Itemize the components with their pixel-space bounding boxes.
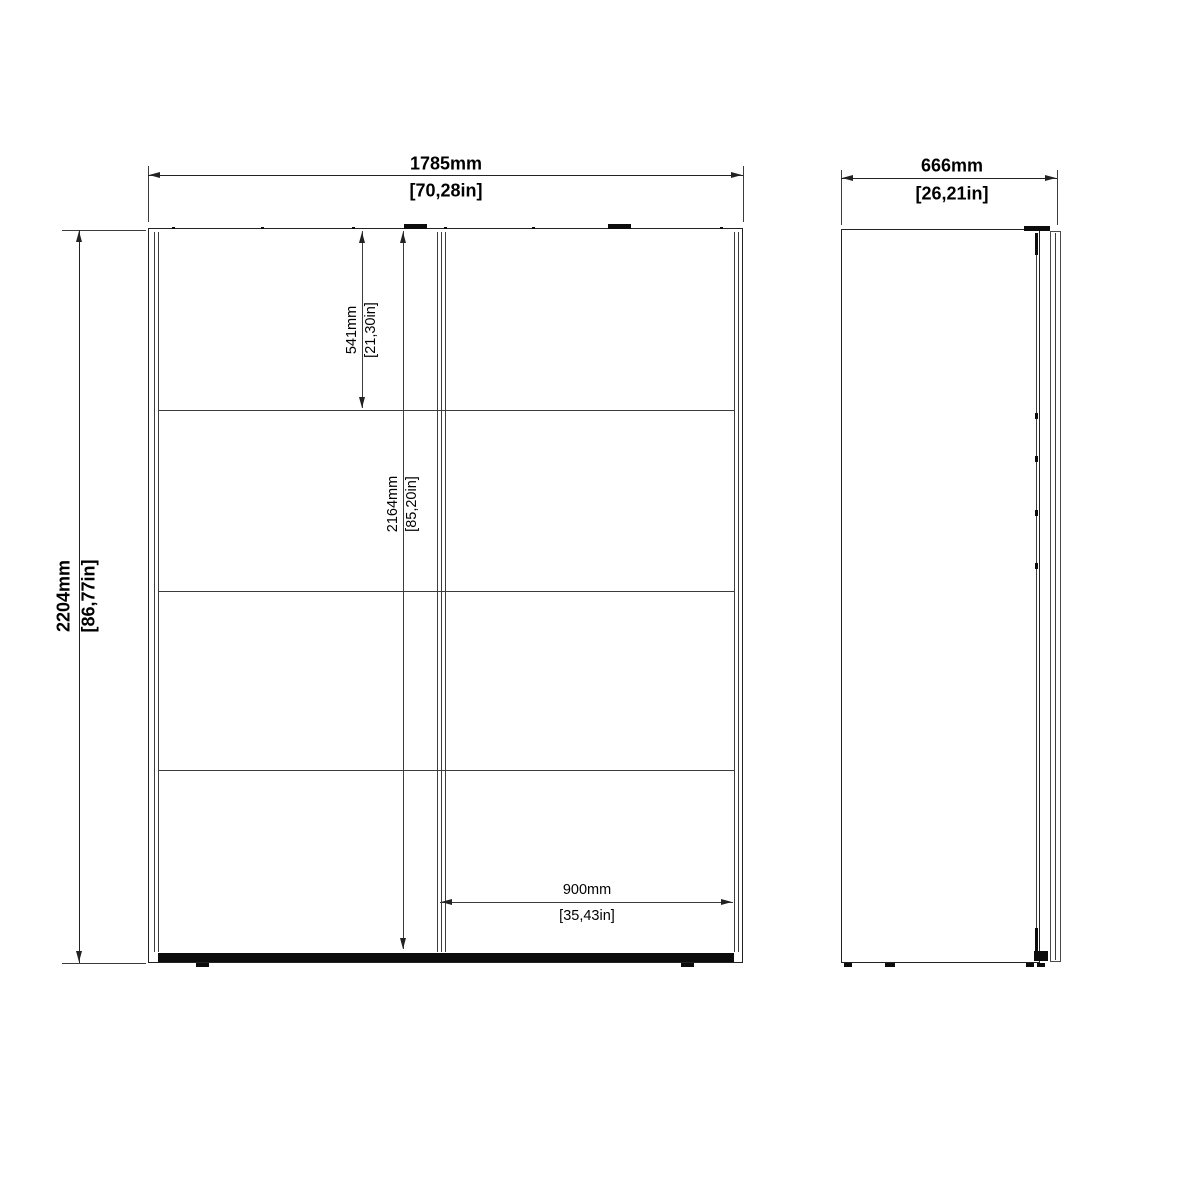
left-door-edge [158,232,159,952]
shelf-line [158,591,734,592]
door-connector-mark [1035,413,1038,419]
sliding-door-inner-line [1055,233,1056,960]
dim-line-overall-width [148,175,743,176]
door-connector-mark [1035,456,1038,462]
wardrobe-dimension-drawing: 1785mm [70,28in] 2204mm [86,77in] 541mm … [0,0,1200,1200]
dim-arrow [76,231,82,242]
top-screw-mark [720,227,723,229]
door-width-in-label: [35,43in] [559,908,615,924]
dim-line-door-width [440,902,733,903]
top-section-mm-label: 541mm [344,306,360,354]
side-depth-mm-label: 666mm [921,156,983,177]
top-screw-mark [532,227,535,229]
door-bottom-roller [1034,951,1048,961]
dim-line-depth [841,178,1057,179]
door-divider [437,232,438,952]
dim-arrow [441,899,452,905]
foot-glide [885,963,895,967]
front-height-mm-label: 2204mm [54,560,75,632]
ext-line-front-right [743,166,744,222]
foot-glide [1037,963,1045,967]
ext-line-height-bottom [62,963,146,964]
dim-arrow [400,938,406,949]
foot-glide [844,963,852,967]
door-connector-mark [1035,510,1038,516]
dim-arrow [842,175,853,181]
dim-arrow [149,172,160,178]
door-connector-mark [1035,233,1038,255]
interior-height-mm-label: 2164mm [385,476,401,532]
bottom-rail [158,953,734,962]
foot-glide [681,963,694,967]
interior-height-in-label: [85,20in] [404,476,420,532]
left-door-edge [154,232,155,952]
dim-arrow [1045,175,1056,181]
side-depth-in-label: [26,21in] [915,184,988,205]
top-section-in-label: [21,30in] [363,302,379,358]
dim-arrow [400,232,406,243]
shelf-line [158,410,734,411]
top-track-bracket [404,224,427,229]
door-divider [445,232,446,952]
dim-arrow [731,172,742,178]
top-track-bracket [1024,226,1050,231]
top-screw-mark [444,227,447,229]
front-width-mm-label: 1785mm [410,154,482,175]
dim-arrow [359,232,365,243]
foot-glide [1026,963,1034,967]
side-view-outline [841,229,1040,963]
side-front-edge [1036,233,1037,961]
right-door-edge [738,232,739,952]
ext-line-side-right [1057,170,1058,225]
dim-arrow [76,951,82,962]
door-width-mm-label: 900mm [563,882,611,898]
door-divider [441,232,442,952]
door-connector-mark [1035,563,1038,569]
dim-arrow [359,397,365,408]
top-track-bracket [608,224,631,229]
front-width-in-label: [70,28in] [409,181,482,202]
dim-line-interior-height [403,231,404,949]
foot-glide [196,963,209,967]
top-screw-mark [172,227,175,229]
door-bottom-roller [1035,928,1038,952]
top-screw-mark [261,227,264,229]
top-screw-mark [352,227,355,229]
dim-arrow [721,899,732,905]
front-height-in-label: [86,77in] [79,559,100,632]
right-door-edge [734,232,735,952]
shelf-line [158,770,734,771]
